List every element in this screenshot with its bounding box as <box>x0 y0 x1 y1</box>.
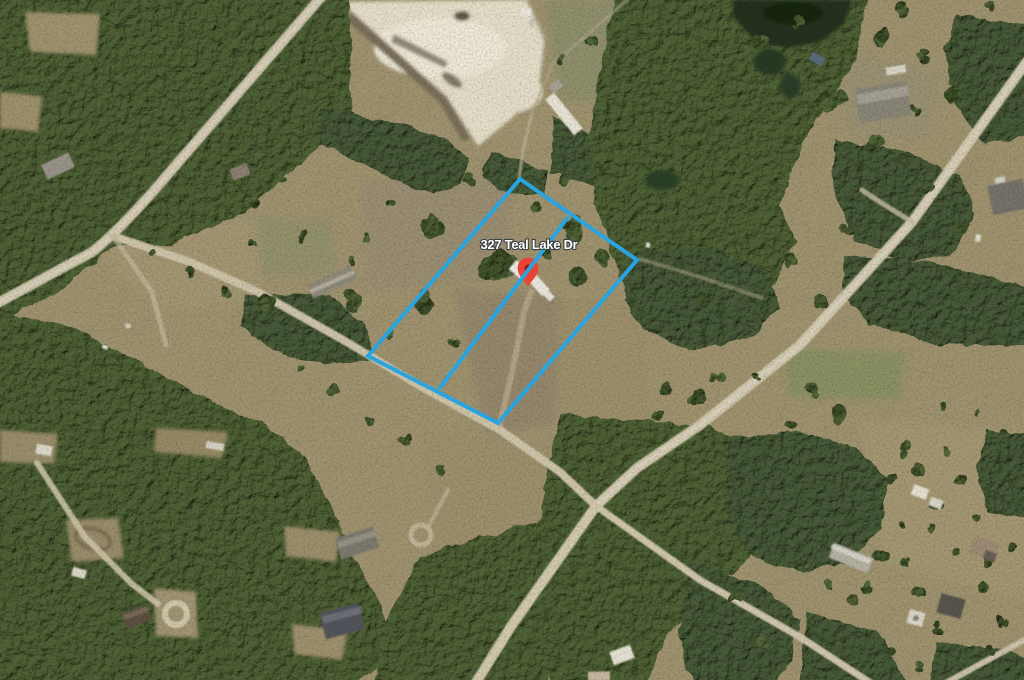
svg-text:327 Teal Lake Dr: 327 Teal Lake Dr <box>481 237 578 252</box>
